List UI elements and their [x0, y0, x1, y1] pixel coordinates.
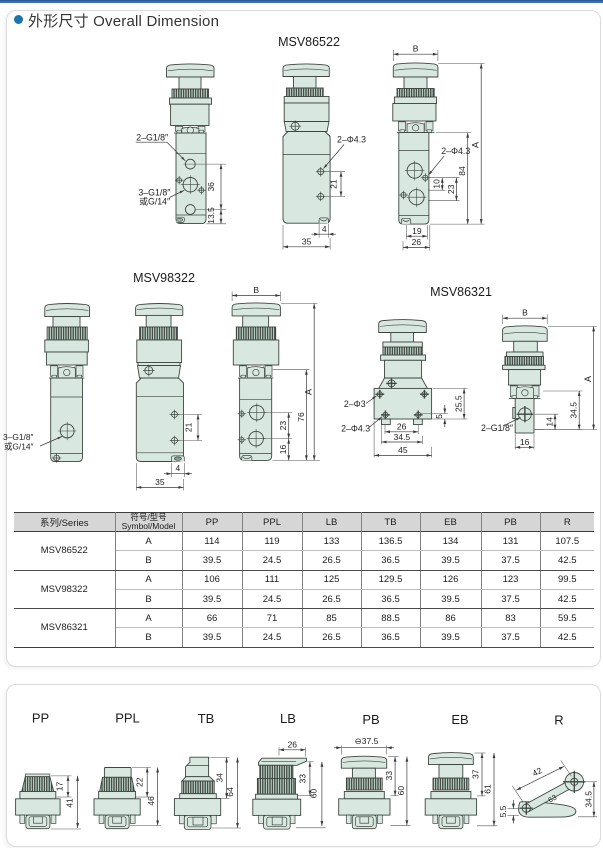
svg-text:B: B	[253, 285, 259, 295]
svg-text:35: 35	[155, 477, 165, 487]
svg-text:16: 16	[520, 437, 530, 447]
svg-text:23: 23	[278, 421, 288, 431]
svg-text:21: 21	[184, 422, 194, 432]
svg-text:84: 84	[457, 166, 467, 176]
svg-text:34.5: 34.5	[569, 402, 579, 419]
svg-text:13.5: 13.5	[206, 207, 216, 224]
svg-text:3–G1/8″: 3–G1/8″	[3, 432, 33, 442]
svg-text:TB: TB	[198, 711, 215, 726]
svg-text:14: 14	[544, 417, 554, 427]
svg-text:或G/14″: 或G/14″	[139, 195, 170, 206]
svg-text:35: 35	[302, 237, 312, 247]
svg-text:2–Φ4.3: 2–Φ4.3	[341, 424, 370, 434]
svg-text:34.5: 34.5	[583, 791, 593, 808]
svg-text:2–Φ4.3: 2–Φ4.3	[441, 146, 470, 156]
svg-text:PPL: PPL	[115, 711, 140, 726]
svg-text:42: 42	[531, 765, 544, 778]
svg-text:33: 33	[298, 774, 308, 784]
svg-text:B: B	[522, 308, 528, 318]
svg-text:PB: PB	[362, 712, 379, 727]
svg-text:或G/14″: 或G/14″	[4, 442, 34, 452]
svg-text:26: 26	[412, 237, 422, 247]
svg-text:B: B	[413, 44, 419, 54]
svg-text:26: 26	[288, 740, 298, 750]
svg-text:2–G1/8″: 2–G1/8″	[136, 132, 168, 142]
svg-text:4: 4	[322, 224, 327, 234]
svg-text:45: 45	[398, 445, 408, 455]
svg-text:60: 60	[396, 786, 406, 796]
svg-text:26: 26	[397, 422, 407, 432]
svg-text:MSV86321: MSV86321	[430, 285, 492, 299]
svg-text:5.5: 5.5	[498, 805, 508, 817]
svg-text:34: 34	[214, 773, 224, 783]
svg-text:2–Φ4.3: 2–Φ4.3	[337, 135, 366, 145]
svg-text:64: 64	[225, 787, 235, 797]
svg-text:2–Φ3: 2–Φ3	[344, 399, 366, 409]
svg-text:4: 4	[176, 463, 181, 473]
svg-text:17: 17	[55, 782, 65, 792]
svg-text:10: 10	[432, 179, 442, 189]
svg-text:PP: PP	[32, 711, 49, 726]
svg-text:25.5: 25.5	[454, 395, 464, 412]
svg-text:⊖37.5: ⊖37.5	[355, 736, 379, 746]
svg-text:76: 76	[296, 412, 306, 422]
svg-text:16: 16	[278, 445, 288, 455]
svg-text:41: 41	[64, 798, 74, 808]
svg-text:34.5: 34.5	[394, 432, 411, 442]
svg-text:60: 60	[308, 789, 318, 799]
svg-text:37: 37	[471, 769, 481, 779]
svg-text:A: A	[304, 389, 314, 395]
svg-text:22: 22	[134, 777, 144, 787]
svg-text:46: 46	[146, 796, 156, 806]
svg-text:19: 19	[412, 226, 422, 236]
svg-text:MSV98322: MSV98322	[133, 271, 195, 285]
svg-text:36: 36	[206, 182, 216, 192]
svg-text:2–G1/8″: 2–G1/8″	[481, 423, 513, 433]
svg-text:23: 23	[446, 184, 456, 194]
svg-text:LB: LB	[280, 711, 296, 726]
svg-text:33: 33	[384, 771, 394, 781]
svg-text:5: 5	[434, 414, 444, 419]
svg-text:A: A	[471, 142, 481, 148]
svg-text:A: A	[583, 376, 593, 382]
svg-text:EB: EB	[451, 712, 468, 727]
svg-text:61: 61	[483, 784, 493, 794]
svg-text:21: 21	[329, 179, 339, 189]
svg-text:R: R	[554, 713, 563, 728]
svg-text:MSV86522: MSV86522	[278, 35, 340, 49]
